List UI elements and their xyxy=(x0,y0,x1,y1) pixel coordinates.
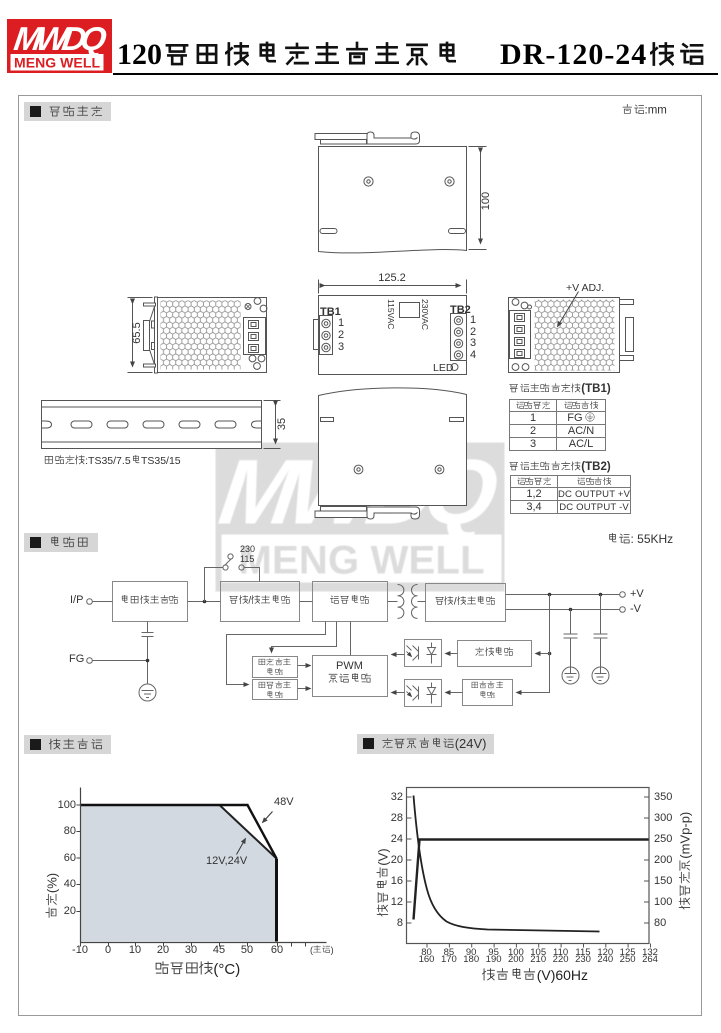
svg-text:MWDQ: MWDQ xyxy=(12,21,109,58)
svg-text:MENG WELL: MENG WELL xyxy=(14,55,100,71)
